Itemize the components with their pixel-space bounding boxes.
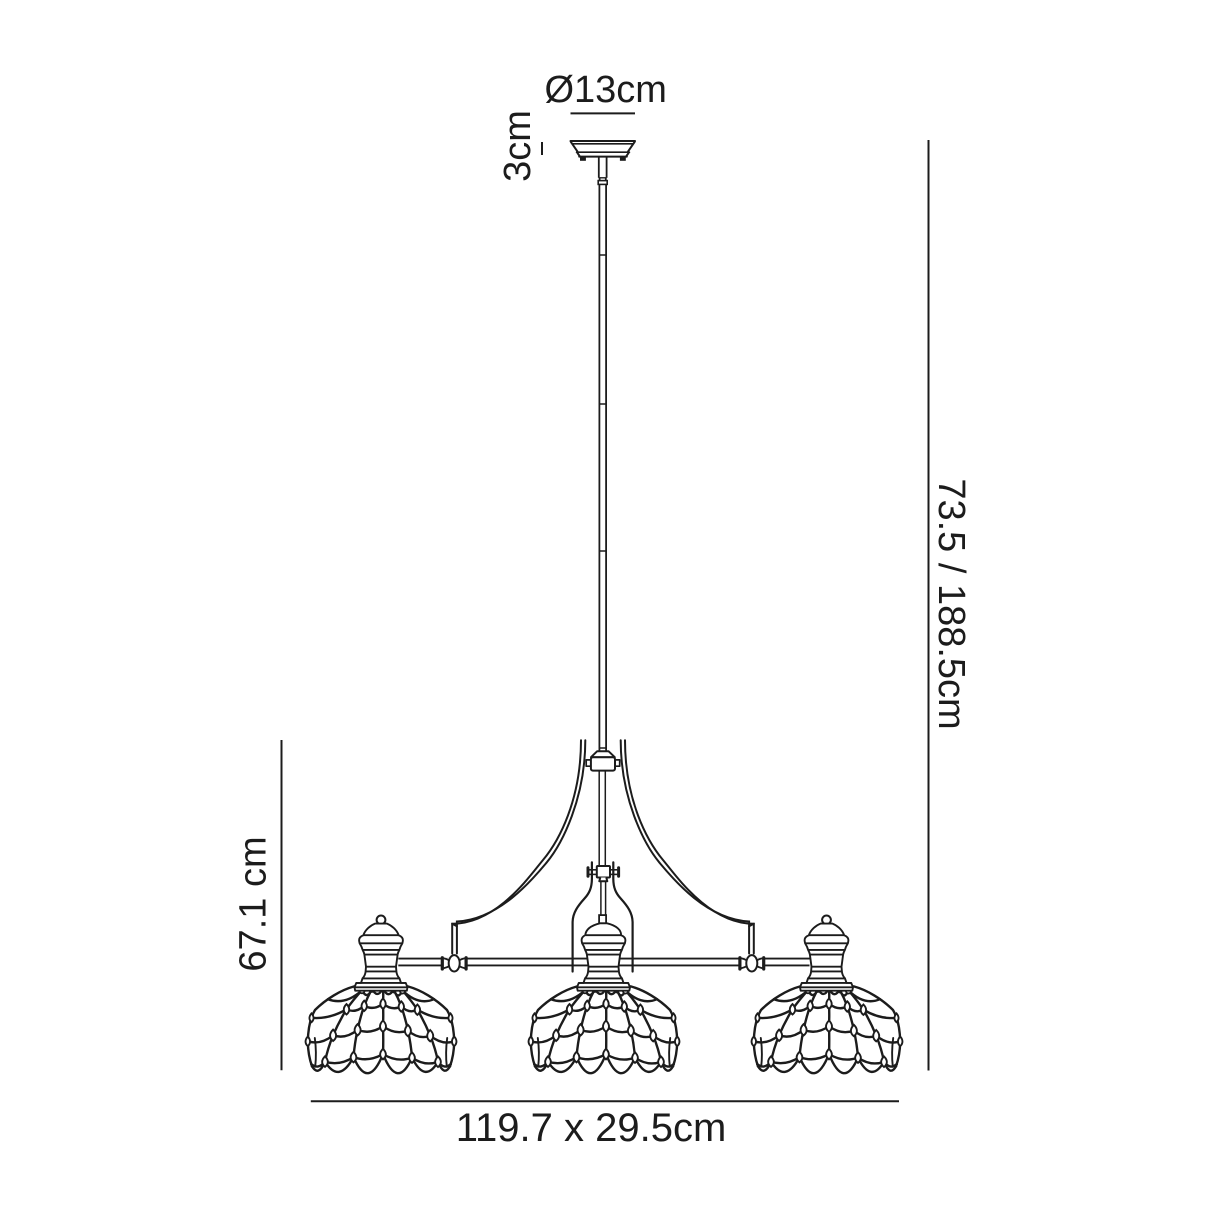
- svg-text:67.1 cm: 67.1 cm: [233, 836, 275, 971]
- svg-text:119.7 x 29.5cm: 119.7 x 29.5cm: [456, 1106, 727, 1150]
- svg-text:Ø13cm: Ø13cm: [544, 69, 666, 111]
- svg-text:73.5 / 188.5cm: 73.5 / 188.5cm: [930, 478, 972, 729]
- svg-text:3cm: 3cm: [497, 110, 539, 182]
